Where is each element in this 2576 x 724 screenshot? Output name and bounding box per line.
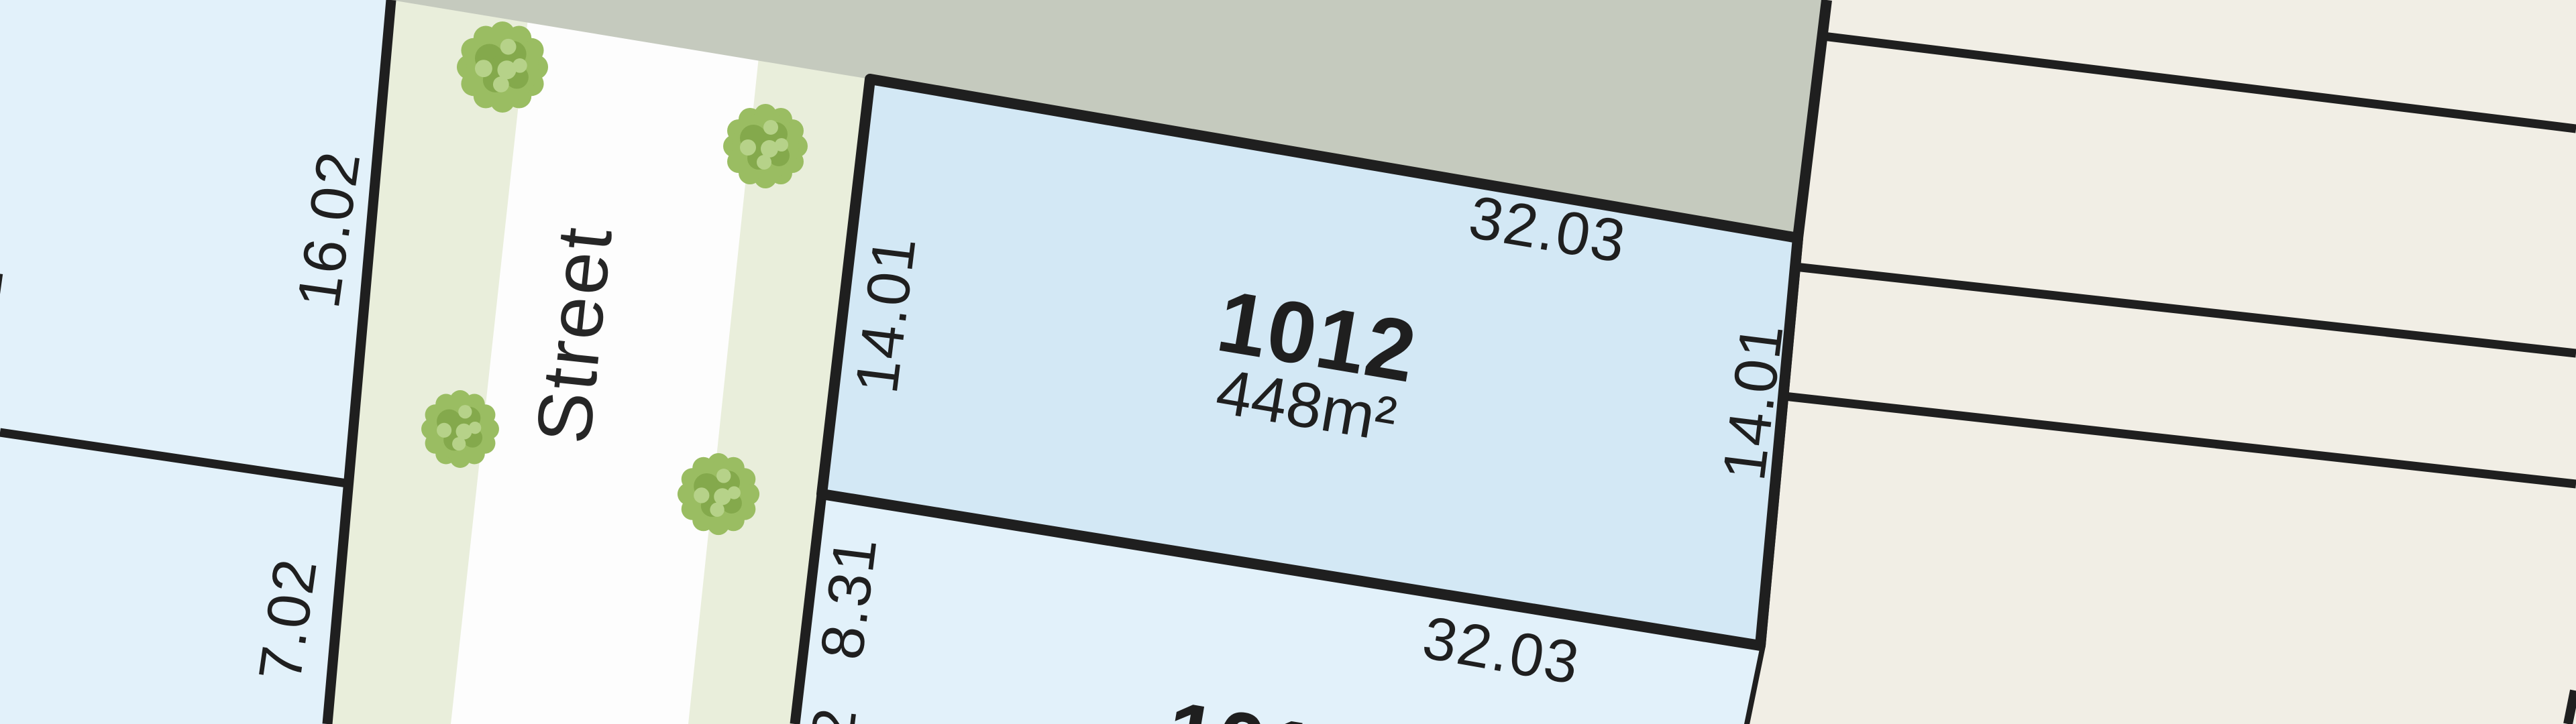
estate-masterplan: .clumps{fill:#84a94c;} .lights{fill:#b6d…	[0, 0, 2576, 724]
